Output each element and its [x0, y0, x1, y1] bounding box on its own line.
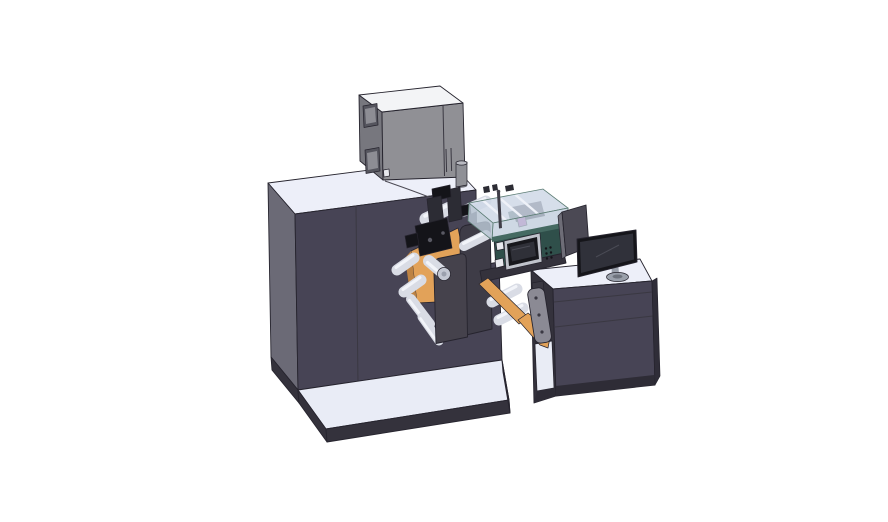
enclosure-window-lower-glass	[367, 151, 378, 170]
enclosure-window-upper-glass	[365, 107, 376, 124]
mechanism-knob	[428, 238, 432, 242]
exhaust-filter-cylinder	[456, 161, 468, 188]
nip-roller-core	[442, 272, 447, 277]
hmi-bolt-plate-lower	[495, 258, 504, 268]
enclosure-front-face	[382, 103, 465, 180]
enclosure-latch	[384, 169, 390, 177]
hmi-bolt-plate-upper	[496, 242, 504, 251]
cylinder-body	[456, 162, 467, 187]
cad-render	[0, 0, 888, 522]
edge-sensor-tip	[497, 190, 501, 194]
monitor-stand-base-hub	[613, 275, 623, 279]
render-viewport	[0, 0, 888, 522]
electrical-enclosure	[359, 86, 465, 180]
mechanism-knob-2	[441, 231, 445, 235]
desk-shelf-cavity	[535, 341, 554, 391]
sensor-arm	[405, 233, 419, 248]
cylinder-top-cap	[456, 161, 467, 165]
